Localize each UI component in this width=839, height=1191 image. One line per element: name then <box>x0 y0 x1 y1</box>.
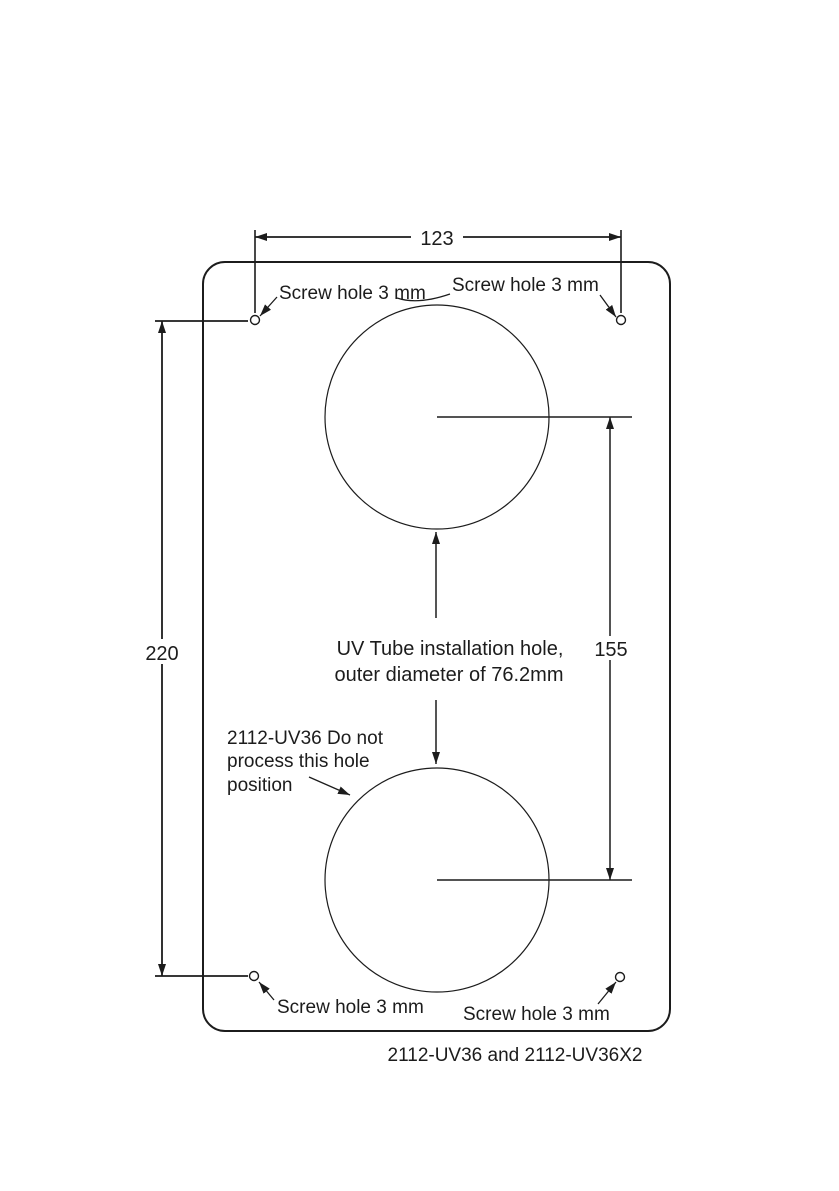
screw-hole-top-left <box>251 316 260 325</box>
dimension-height-label: 220 <box>145 643 178 665</box>
leader-position-note <box>309 777 350 795</box>
screw-hole-bottom-right <box>616 973 625 982</box>
uv-hole-note-line2: outer diameter of 76.2mm <box>335 664 564 686</box>
leader-screw-bottom-right <box>598 982 616 1004</box>
leader-screw-bottom-left <box>259 982 274 1000</box>
screw-hole-label-bottom-left: Screw hole 3 mm <box>277 997 424 1018</box>
drawing-page: 123 220 155 Screw hole 3 mm Screw hole 3… <box>0 0 839 1191</box>
dimension-width-label: 123 <box>420 228 453 250</box>
position-note-line3: position <box>227 775 293 796</box>
dimension-spacing-label: 155 <box>594 639 627 661</box>
panel-drawing: 123 220 155 Screw hole 3 mm Screw hole 3… <box>0 0 839 1191</box>
drawing-caption: 2112-UV36 and 2112-UV36X2 <box>388 1045 643 1066</box>
leader-screw-top-right <box>600 295 616 317</box>
screw-hole-label-bottom-right: Screw hole 3 mm <box>463 1004 610 1025</box>
screw-hole-bottom-left <box>250 972 259 981</box>
leader-screw-top-left <box>260 297 277 316</box>
position-note-line1: 2112-UV36 Do not <box>227 728 384 749</box>
screw-hole-label-top-left: Screw hole 3 mm <box>279 283 426 304</box>
uv-hole-note-line1: UV Tube installation hole, <box>337 638 564 660</box>
position-note-line2: process this hole <box>227 751 370 772</box>
screw-hole-label-top-right: Screw hole 3 mm <box>452 275 599 296</box>
screw-hole-top-right <box>617 316 626 325</box>
